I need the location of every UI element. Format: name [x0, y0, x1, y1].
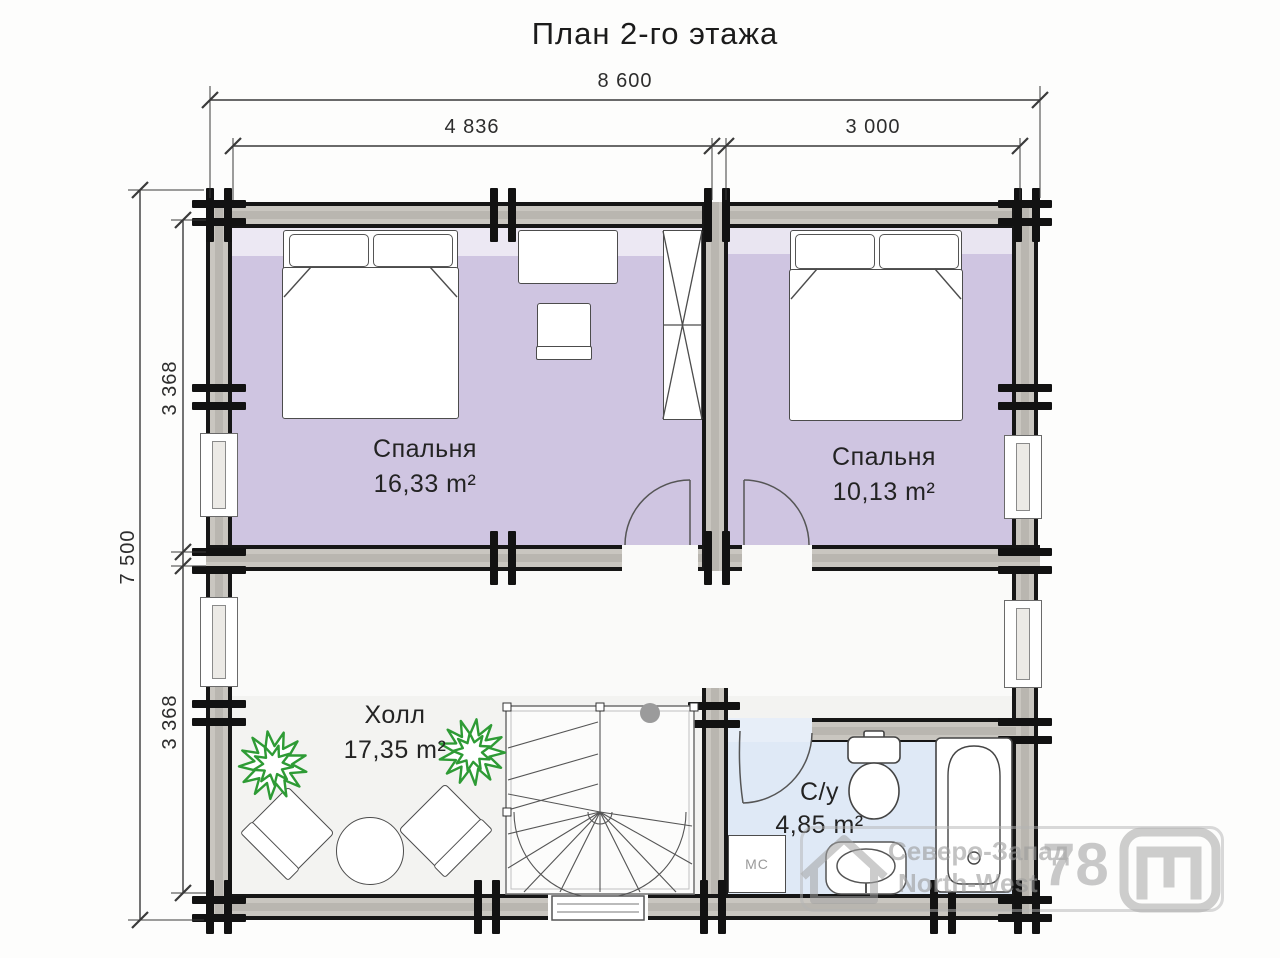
log-end: [722, 188, 730, 242]
room-label-hall: Холл 17,35 m²: [300, 698, 490, 768]
dim-line-top-total: [202, 86, 1048, 198]
pillow-icon: [289, 234, 369, 267]
wardrobe-icon: [663, 230, 702, 420]
room-name: Холл: [300, 698, 490, 733]
bed-icon-2: [790, 230, 962, 420]
blanket: [282, 267, 458, 419]
room-name: Спальня: [320, 432, 530, 467]
room-area: 10,13 m²: [779, 475, 989, 510]
log-end: [704, 531, 712, 585]
log-end: [490, 531, 498, 585]
log-end: [192, 402, 246, 410]
stool-seat: [536, 346, 591, 360]
log-end: [1032, 188, 1040, 242]
log-end: [722, 531, 730, 585]
watermark-company-en: North-West: [898, 868, 1038, 899]
log-end: [508, 531, 516, 585]
wall-bathroom-left: [702, 688, 728, 894]
pillow-icon: [373, 234, 453, 267]
dim-line-left-split: [171, 212, 206, 901]
log-end: [998, 914, 1052, 922]
log-end: [998, 218, 1052, 226]
log-end: [192, 566, 246, 574]
room-area: 16,33 m²: [320, 467, 530, 502]
log-end: [192, 700, 246, 708]
wall-top: [206, 202, 1040, 228]
log-end: [998, 402, 1052, 410]
log-end: [998, 736, 1052, 744]
window-frame: [212, 605, 226, 679]
log-end: [688, 720, 740, 728]
log-end: [224, 188, 232, 242]
log-end: [490, 188, 498, 242]
log-end: [224, 880, 232, 934]
log-end: [492, 880, 500, 934]
room-label-bedroom2: Спальня 10,13 m²: [779, 440, 989, 510]
room-name: Спальня: [779, 440, 989, 475]
log-end: [1014, 188, 1022, 242]
log-end: [474, 880, 482, 934]
door-opening-1: [622, 545, 698, 571]
log-end: [998, 384, 1052, 392]
log-end: [998, 548, 1052, 556]
window-frame: [212, 441, 226, 509]
room-label-bedroom1: Спальня 16,33 m²: [320, 432, 530, 502]
dim-label-left-total: 7 500: [117, 514, 139, 600]
log-end: [688, 702, 740, 710]
log-end: [998, 566, 1052, 574]
log-end: [192, 548, 246, 556]
log-end: [192, 896, 246, 904]
log-end: [192, 384, 246, 392]
room-name: С/у: [752, 776, 887, 809]
floor-plan-canvas: МС: [0, 0, 1280, 958]
dim-label-top-right: 3 000: [813, 116, 933, 139]
wall-bedroom-divider: [702, 202, 728, 571]
page-title: План 2-го этажа: [440, 16, 870, 52]
pillow-icon: [879, 234, 959, 269]
washing-machine-icon: МС: [728, 835, 786, 893]
window-frame: [1016, 443, 1030, 511]
dim-line-top-split: [225, 138, 1028, 200]
log-end: [192, 718, 246, 726]
coffee-table-icon: [336, 817, 404, 885]
wall-bathroom-top: [812, 718, 1016, 742]
log-end: [704, 188, 712, 242]
log-end: [206, 188, 214, 242]
log-end: [192, 200, 246, 208]
stool-icon: [537, 303, 591, 359]
watermark-region-code: 78: [1042, 830, 1109, 899]
log-end: [206, 880, 214, 934]
dresser-icon: [518, 230, 618, 284]
log-end: [700, 880, 708, 934]
dim-label-left-lower: 3 368: [159, 679, 181, 765]
hall-upper-light: [232, 571, 1012, 696]
window-frame: [1016, 608, 1030, 680]
log-end: [998, 718, 1052, 726]
wall-mid-a: [206, 545, 622, 571]
blanket: [789, 269, 962, 421]
log-end: [718, 880, 726, 934]
dim-label-left-upper: 3 368: [159, 345, 181, 431]
log-end: [192, 914, 246, 922]
dim-label-top-left: 4 836: [412, 116, 532, 139]
washing-machine-label: МС: [745, 856, 769, 872]
room-area: 17,35 m²: [300, 733, 490, 768]
dim-label-top-total: 8 600: [565, 70, 685, 93]
bed-icon-1: [283, 230, 458, 418]
log-end: [192, 218, 246, 226]
pillow-icon: [795, 234, 875, 269]
log-end: [998, 200, 1052, 208]
entry-step-icon: [552, 896, 644, 920]
log-end: [508, 188, 516, 242]
door-opening-2: [742, 545, 812, 571]
